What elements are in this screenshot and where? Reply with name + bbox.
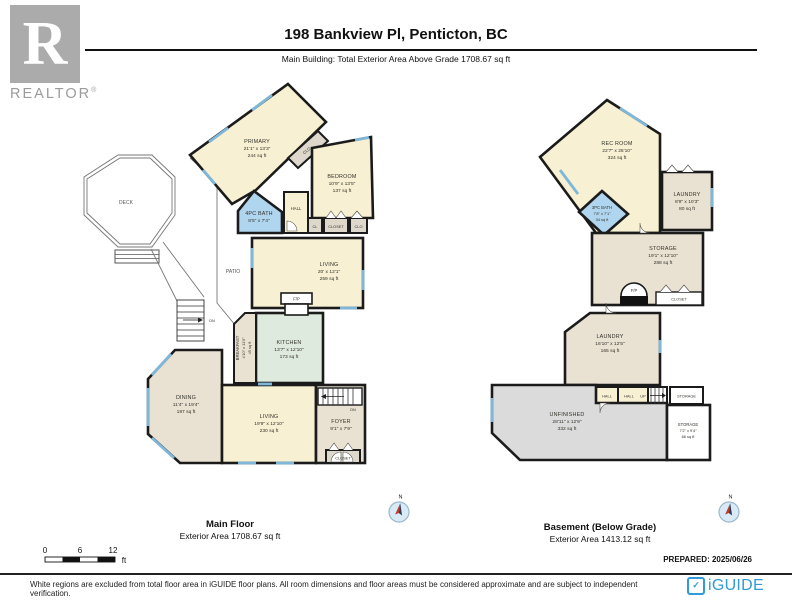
patio-stairs: DN (151, 242, 215, 341)
footer-disclaimer: White regions are excluded from total fl… (30, 580, 650, 598)
realtor-r-letter: R (23, 13, 68, 75)
fireplace-basement: F/P (620, 283, 648, 305)
svg-text:22'7" x 25'10": 22'7" x 25'10" (602, 148, 632, 154)
basement-title: Basement (Below Grade) (450, 522, 750, 533)
svg-text:11'4" x 19'4": 11'4" x 19'4" (173, 402, 200, 408)
realtor-r-mark: R (10, 5, 80, 83)
deck: DECK (84, 155, 175, 263)
svg-text:9'1" x 7'9": 9'1" x 7'9" (330, 426, 352, 432)
svg-text:10'9" x 13'5": 10'9" x 13'5" (329, 181, 356, 187)
deck-label: DECK (119, 200, 134, 206)
storage-lower-label: STORAGE (678, 422, 699, 427)
basement-caption: Basement (Below Grade) Exterior Area 141… (450, 522, 750, 544)
svg-text:16'10" x 12'5": 16'10" x 12'5" (595, 341, 625, 347)
cl-label: CL (313, 224, 319, 229)
svg-text:8'9" x 10'3": 8'9" x 10'3" (675, 199, 699, 205)
page-title: 198 Bankview Pl, Penticton, BC (0, 26, 792, 43)
svg-text:137 sq ft: 137 sq ft (333, 188, 352, 194)
svg-text:7'2" x 9'4": 7'2" x 9'4" (679, 428, 697, 433)
svg-text:21'1" x 13'3": 21'1" x 13'3" (244, 146, 271, 152)
bath4pc-label: 4PC BATH (245, 211, 273, 217)
living-upper-label: LIVING (320, 262, 339, 268)
svg-text:332 sq ft: 332 sq ft (558, 426, 577, 432)
svg-text:20' x 12'1": 20' x 12'1" (318, 269, 341, 275)
living-lower-label: LIVING (260, 414, 279, 420)
compass-north-basement: N (729, 495, 733, 501)
unfinished-label: UNFINISHED (550, 412, 585, 418)
svg-text:230 sq ft: 230 sq ft (260, 428, 279, 434)
up-label: UP (640, 394, 646, 399)
bath3pc-label: 3PC BATH (592, 205, 612, 210)
scale-12: 12 (109, 546, 118, 555)
bedroom-label: BEDROOM (327, 174, 357, 180)
storage-hall-label: STORAGE (677, 394, 696, 399)
closet-label: CLOSET (328, 224, 344, 229)
svg-text:34 sq ft: 34 sq ft (596, 217, 610, 222)
scale-unit: ft (122, 556, 127, 565)
scale-bar: 0 6 12 ft (40, 543, 160, 569)
breakfast-label: BREAKFAST (235, 335, 240, 360)
svg-text:244 sq ft: 244 sq ft (248, 153, 267, 159)
dining-label: DINING (176, 395, 196, 401)
svg-text:259 sq ft: 259 sq ft (320, 276, 339, 282)
svg-text:66 sq ft: 66 sq ft (682, 434, 696, 439)
clo-label: CLO (355, 224, 363, 229)
fp-main-label: F/P (293, 297, 300, 302)
iguide-icon: ✓ (687, 577, 705, 595)
footer-divider (0, 573, 792, 575)
closet-foyer-label: CLOSET (335, 456, 351, 461)
svg-text:288 sq ft: 288 sq ft (654, 260, 673, 266)
basement-plan: F/P CLOSET (470, 80, 770, 500)
iguide-logo: ✓ iGUIDE (687, 577, 764, 595)
svg-text:28'11" x 12'9": 28'11" x 12'9" (552, 419, 581, 425)
iguide-wordmark: iGUIDE (708, 577, 764, 595)
hall-label: HALL (291, 206, 302, 211)
compass-north-main: N (399, 495, 403, 501)
patio-dn-label: DN (209, 318, 215, 323)
svg-text:80 sq ft: 80 sq ft (679, 206, 696, 212)
hall-basement-label: HALL (602, 394, 613, 399)
scale-0: 0 (43, 546, 48, 555)
rec-room-label: REC ROOM (601, 141, 633, 147)
patio-label: PATIO (226, 269, 240, 275)
svg-text:19'1" x 12'10": 19'1" x 12'10" (648, 253, 678, 259)
main-floor-title: Main Floor (30, 519, 430, 530)
svg-text:8'5" x 7'4": 8'5" x 7'4" (248, 218, 270, 224)
scale-6: 6 (78, 546, 83, 555)
fireplace-main: F/P (281, 293, 312, 315)
storage-upper-label: STORAGE (649, 246, 677, 252)
svg-text:7'8" x 7'1": 7'8" x 7'1" (593, 211, 611, 216)
header-divider (85, 49, 757, 51)
main-floor-area: Exterior Area 1708.67 sq ft (30, 531, 430, 541)
foyer-label: FOYER (331, 419, 351, 425)
laundry-upper-label: LAUNDRY (673, 192, 700, 198)
svg-text:45 sq ft: 45 sq ft (247, 341, 252, 355)
foyer-dn-label: DN (350, 407, 356, 412)
prepared-date: PREPARED: 2025/06/26 (663, 555, 752, 564)
primary-label: PRIMARY (244, 139, 270, 145)
closet-basement-label: CLOSET (671, 297, 687, 302)
header-subtitle: Main Building: Total Exterior Area Above… (0, 54, 792, 64)
hall2-basement-label: HALL (624, 394, 635, 399)
compass-basement: N (716, 492, 742, 524)
basement-area: Exterior Area 1413.12 sq ft (450, 534, 750, 544)
svg-text:13'7" x 12'10": 13'7" x 12'10" (274, 347, 304, 353)
fp-basement-label: F/P (631, 288, 638, 293)
kitchen-label: KITCHEN (276, 340, 301, 346)
laundry-lower-label: LAUNDRY (596, 334, 623, 340)
svg-text:173 sq ft: 173 sq ft (280, 354, 299, 360)
main-floor-caption: Main Floor Exterior Area 1708.67 sq ft (30, 519, 430, 541)
svg-text:324 sq ft: 324 sq ft (608, 155, 627, 161)
svg-text:165 sq ft: 165 sq ft (601, 348, 620, 354)
floor-plan-page: R REALTOR® 198 Bankview Pl, Penticton, B… (0, 0, 792, 612)
svg-text:19'9" x 12'10": 19'9" x 12'10" (254, 421, 284, 427)
main-floor-plan: DECK PATIO DN (40, 80, 440, 500)
svg-text:197 sq ft: 197 sq ft (177, 409, 196, 415)
svg-text:4'10" x 11'0": 4'10" x 11'0" (241, 337, 246, 359)
